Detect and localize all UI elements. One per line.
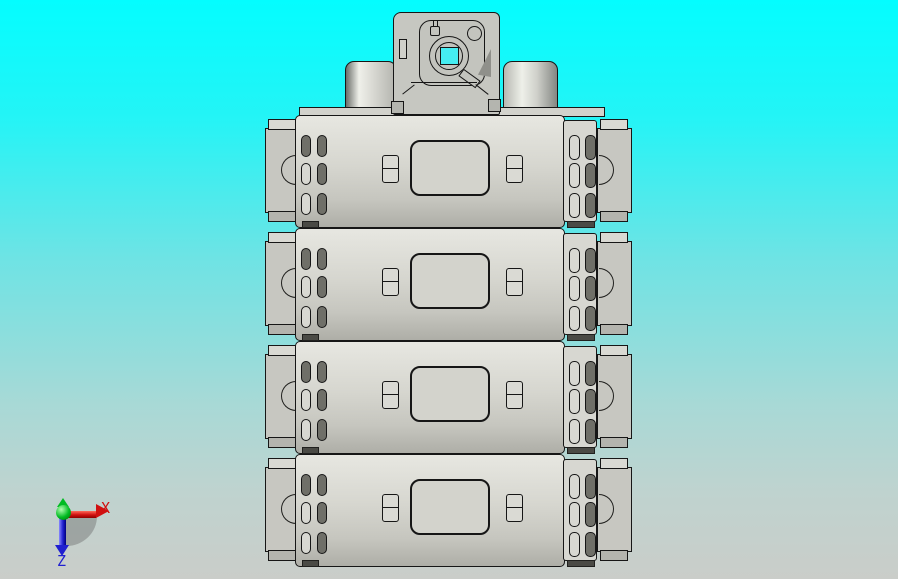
- wing-notch: [281, 381, 296, 411]
- keyhole-cutout: [430, 26, 440, 36]
- terminal-slot[interactable]: [585, 135, 596, 160]
- terminal-slot[interactable]: [585, 163, 596, 188]
- mounting-clamp-plate[interactable]: [393, 12, 500, 115]
- connector-port-right[interactable]: [506, 268, 523, 296]
- terminal-slot[interactable]: [585, 276, 596, 301]
- mounting-wing-right[interactable]: [597, 241, 632, 326]
- wing-notch: [599, 155, 614, 185]
- x-axis-label: X: [101, 499, 110, 517]
- wing-notch: [281, 268, 296, 298]
- terminal-slot[interactable]: [585, 532, 596, 557]
- terminal-slot[interactable]: [569, 276, 580, 301]
- mounting-wing-right[interactable]: [597, 467, 632, 552]
- clamp-chamfer-edge: [402, 84, 414, 94]
- wing-notch: [281, 494, 296, 524]
- wing-notch: [281, 155, 296, 185]
- terminal-slot[interactable]: [317, 361, 327, 383]
- terminal-slot[interactable]: [569, 419, 580, 444]
- terminal-slot[interactable]: [317, 389, 327, 411]
- terminal-slot[interactable]: [569, 389, 580, 414]
- seam-tab: [567, 221, 595, 228]
- terminal-slot[interactable]: [317, 135, 327, 157]
- seam-tab: [567, 447, 595, 454]
- terminal-slot[interactable]: [301, 502, 311, 524]
- terminal-slot[interactable]: [317, 474, 327, 496]
- module-stack[interactable]: [265, 115, 632, 567]
- terminal-slot[interactable]: [569, 248, 580, 273]
- terminal-slot[interactable]: [317, 419, 327, 441]
- mounting-wing-left[interactable]: [265, 467, 298, 552]
- origin-triad: X Z: [55, 492, 130, 570]
- terminal-slot[interactable]: [317, 248, 327, 270]
- terminal-slot[interactable]: [301, 361, 311, 383]
- seam-tab: [302, 221, 319, 228]
- z-axis-arrow[interactable]: [59, 517, 66, 545]
- wing-notch: [599, 268, 614, 298]
- terminal-slot[interactable]: [317, 276, 327, 298]
- terminal-slot[interactable]: [585, 474, 596, 499]
- terminal-slot[interactable]: [317, 163, 327, 185]
- seam-tab: [567, 334, 595, 341]
- clamp-square-hole: [440, 47, 459, 65]
- clamp-side-slot: [399, 39, 407, 59]
- terminal-module[interactable]: [265, 454, 632, 567]
- mounting-wing-right[interactable]: [597, 128, 632, 213]
- terminal-slot[interactable]: [301, 163, 311, 185]
- z-axis-label: Z: [57, 552, 66, 570]
- terminal-slot[interactable]: [569, 135, 580, 160]
- terminal-slot[interactable]: [301, 135, 311, 157]
- terminal-slot[interactable]: [585, 502, 596, 527]
- connector-port-right[interactable]: [506, 494, 523, 522]
- terminal-module[interactable]: [265, 341, 632, 454]
- connector-port-left[interactable]: [382, 494, 399, 522]
- terminal-slot[interactable]: [585, 248, 596, 273]
- terminal-slot[interactable]: [569, 361, 580, 386]
- terminal-slot[interactable]: [301, 474, 311, 496]
- terminal-slot[interactable]: [585, 419, 596, 444]
- module-label-window[interactable]: [410, 479, 490, 535]
- clamp-foot-left: [391, 101, 404, 114]
- module-label-window[interactable]: [410, 253, 490, 309]
- connector-port-left[interactable]: [382, 268, 399, 296]
- mounting-wing-left[interactable]: [265, 241, 298, 326]
- terminal-slot[interactable]: [585, 361, 596, 386]
- seam-tab: [302, 334, 319, 341]
- terminal-slot[interactable]: [569, 474, 580, 499]
- terminal-slot[interactable]: [569, 306, 580, 331]
- terminal-slot[interactable]: [301, 248, 311, 270]
- mounting-wing-left[interactable]: [265, 354, 298, 439]
- terminal-slot[interactable]: [301, 193, 311, 215]
- seam-tab: [567, 560, 595, 567]
- terminal-slot[interactable]: [301, 276, 311, 298]
- wing-notch: [599, 494, 614, 524]
- terminal-slot[interactable]: [301, 419, 311, 441]
- terminal-slot[interactable]: [317, 502, 327, 524]
- clamp-foot-right: [488, 99, 501, 112]
- mounting-wing-right[interactable]: [597, 354, 632, 439]
- module-label-window[interactable]: [410, 366, 490, 422]
- terminal-slot[interactable]: [317, 193, 327, 215]
- connector-port-right[interactable]: [506, 155, 523, 183]
- terminal-slot[interactable]: [301, 532, 311, 554]
- clamp-round-hole: [467, 26, 482, 41]
- terminal-slot[interactable]: [585, 389, 596, 414]
- connector-port-left[interactable]: [382, 155, 399, 183]
- mounting-wing-left[interactable]: [265, 128, 298, 213]
- origin-ball[interactable]: [56, 505, 71, 520]
- terminal-slot[interactable]: [569, 502, 580, 527]
- seam-tab: [302, 447, 319, 454]
- terminal-slot[interactable]: [301, 306, 311, 328]
- wing-notch: [599, 381, 614, 411]
- terminal-slot[interactable]: [317, 306, 327, 328]
- terminal-slot[interactable]: [317, 532, 327, 554]
- cad-viewport[interactable]: X Z: [0, 0, 898, 579]
- terminal-slot[interactable]: [569, 193, 580, 218]
- terminal-slot[interactable]: [301, 389, 311, 411]
- terminal-slot[interactable]: [585, 306, 596, 331]
- terminal-slot[interactable]: [569, 163, 580, 188]
- seam-tab: [302, 560, 319, 567]
- terminal-module[interactable]: [265, 115, 632, 228]
- connector-port-right[interactable]: [506, 381, 523, 409]
- module-label-window[interactable]: [410, 140, 490, 196]
- clamp-chamfer-edge: [475, 84, 488, 95]
- terminal-slot[interactable]: [585, 193, 596, 218]
- connector-port-left[interactable]: [382, 381, 399, 409]
- terminal-slot[interactable]: [569, 532, 580, 557]
- terminal-module[interactable]: [265, 228, 632, 341]
- clamp-chamfer-edge: [411, 82, 477, 83]
